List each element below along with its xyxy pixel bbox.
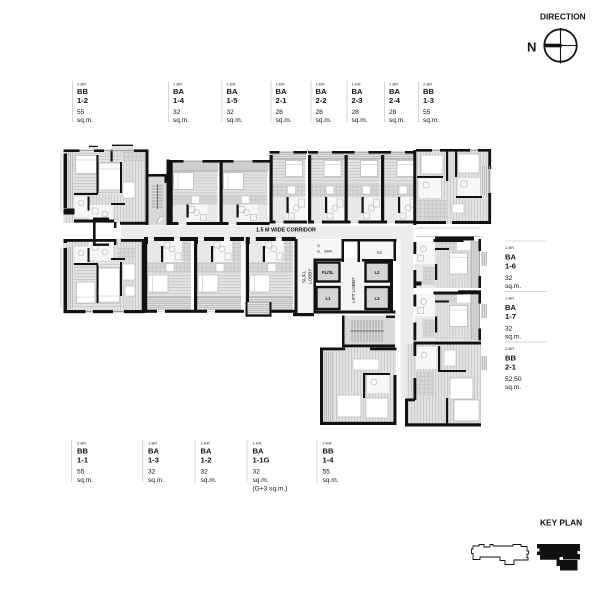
svg-text:N: N <box>527 40 536 55</box>
svg-text:1-6: 1-6 <box>505 262 516 271</box>
svg-text:2-1: 2-1 <box>505 363 517 372</box>
svg-text:L3: L3 <box>375 296 381 301</box>
svg-text:1-BR: 1-BR <box>352 82 361 87</box>
svg-text:32: 32 <box>227 109 235 116</box>
svg-text:32: 32 <box>253 469 261 476</box>
svg-text:32: 32 <box>173 109 181 116</box>
svg-text:BA: BA <box>505 303 516 312</box>
svg-text:sq.m.: sq.m. <box>505 384 521 391</box>
svg-text:LOBBY: LOBBY <box>308 269 313 284</box>
svg-text:2-1: 2-1 <box>276 96 288 105</box>
svg-text:1-2: 1-2 <box>201 456 212 465</box>
svg-text:32: 32 <box>201 469 209 476</box>
svg-text:1-BR: 1-BR <box>227 82 236 87</box>
svg-text:sq.m.: sq.m. <box>77 117 93 124</box>
svg-text:sq.m.: sq.m. <box>227 117 243 124</box>
svg-text:FL/SL: FL/SL <box>322 270 334 275</box>
svg-text:G.: G. <box>317 244 321 248</box>
svg-text:BB: BB <box>323 447 334 456</box>
svg-text:55: 55 <box>77 109 85 116</box>
svg-text:G.: G. <box>317 250 321 254</box>
svg-text:2-4: 2-4 <box>389 96 401 105</box>
svg-text:LIFT LOBBY: LIFT LOBBY <box>351 277 356 303</box>
svg-text:52.50: 52.50 <box>505 376 522 383</box>
svg-text:28: 28 <box>352 109 360 116</box>
svg-text:55: 55 <box>423 109 431 116</box>
svg-text:32: 32 <box>148 469 156 476</box>
svg-text:sq.m.: sq.m. <box>505 283 521 290</box>
svg-text:BA: BA <box>253 447 264 456</box>
svg-text:2-BR: 2-BR <box>77 441 86 446</box>
svg-text:sq.m.: sq.m. <box>505 334 521 341</box>
svg-text:BB: BB <box>77 87 88 96</box>
svg-text:BA: BA <box>173 87 184 96</box>
svg-text:sq.m.: sq.m. <box>173 117 189 124</box>
svg-text:sq.m.: sq.m. <box>423 117 439 124</box>
svg-text:BA: BA <box>505 253 516 262</box>
svg-text:2-2: 2-2 <box>316 96 327 105</box>
svg-text:1-BR: 1-BR <box>253 441 262 446</box>
svg-text:1-3: 1-3 <box>148 456 159 465</box>
svg-text:BA: BA <box>276 87 287 96</box>
svg-text:1-BR: 1-BR <box>148 441 157 446</box>
svg-text:28: 28 <box>316 109 324 116</box>
svg-text:BA: BA <box>352 87 363 96</box>
svg-text:55: 55 <box>77 469 85 476</box>
svg-text:1-BR: 1-BR <box>505 296 514 301</box>
svg-text:sq.m.: sq.m. <box>148 477 164 484</box>
svg-text:sq.m.: sq.m. <box>201 477 217 484</box>
svg-text:1-BR: 1-BR <box>505 245 514 250</box>
svg-text:55: 55 <box>323 469 331 476</box>
svg-text:2-BR: 2-BR <box>505 346 514 351</box>
svg-text:KEY PLAN: KEY PLAN <box>540 518 582 528</box>
svg-text:1-BR: 1-BR <box>173 82 182 87</box>
svg-text:1-5: 1-5 <box>227 96 239 105</box>
svg-text:BB: BB <box>77 447 88 456</box>
svg-text:1-BR: 1-BR <box>276 82 285 87</box>
svg-text:DIRECTION: DIRECTION <box>540 12 586 22</box>
svg-text:SAN.: SAN. <box>324 250 333 254</box>
svg-text:1-BR: 1-BR <box>389 82 398 87</box>
svg-text:BA: BA <box>148 447 159 456</box>
svg-text:sq.m.: sq.m. <box>77 477 93 484</box>
svg-text:sq.m.: sq.m. <box>276 117 292 124</box>
svg-text:BB: BB <box>505 354 516 363</box>
svg-text:2-BR: 2-BR <box>323 441 332 446</box>
svg-text:28: 28 <box>389 109 397 116</box>
svg-text:1-1G: 1-1G <box>253 456 270 465</box>
svg-text:1-7: 1-7 <box>505 312 516 321</box>
svg-text:1-4: 1-4 <box>323 456 335 465</box>
svg-text:BB: BB <box>423 87 434 96</box>
svg-text:L2: L2 <box>375 270 381 275</box>
svg-text:1-3: 1-3 <box>423 96 434 105</box>
svg-text:28: 28 <box>276 109 284 116</box>
svg-text:SL/FL: SL/FL <box>302 270 307 283</box>
svg-text:1-BR: 1-BR <box>316 82 325 87</box>
svg-text:2-BR: 2-BR <box>423 82 432 87</box>
svg-text:(G+3 sq.m.): (G+3 sq.m.) <box>253 486 288 493</box>
svg-text:L1: L1 <box>326 296 332 301</box>
svg-text:1.5 M WIDE CORRIDOR: 1.5 M WIDE CORRIDOR <box>256 228 316 234</box>
svg-text:EE.: EE. <box>377 251 383 255</box>
svg-text:sq.m.: sq.m. <box>323 477 339 484</box>
svg-text:sq.m.: sq.m. <box>316 117 332 124</box>
svg-text:1-2: 1-2 <box>77 96 88 105</box>
svg-text:BA: BA <box>389 87 400 96</box>
svg-text:2-3: 2-3 <box>352 96 363 105</box>
svg-text:BA: BA <box>201 447 212 456</box>
svg-text:sq.m.: sq.m. <box>253 477 269 484</box>
svg-text:BA: BA <box>227 87 238 96</box>
svg-text:1-4: 1-4 <box>173 96 185 105</box>
svg-text:BA: BA <box>316 87 327 96</box>
svg-text:sq.m.: sq.m. <box>389 117 405 124</box>
svg-text:32: 32 <box>505 326 513 333</box>
svg-text:sq.m.: sq.m. <box>352 117 368 124</box>
svg-text:32: 32 <box>505 275 513 282</box>
svg-text:1-1: 1-1 <box>77 456 89 465</box>
svg-text:2-BR: 2-BR <box>77 82 86 87</box>
svg-text:1-BR: 1-BR <box>201 441 210 446</box>
